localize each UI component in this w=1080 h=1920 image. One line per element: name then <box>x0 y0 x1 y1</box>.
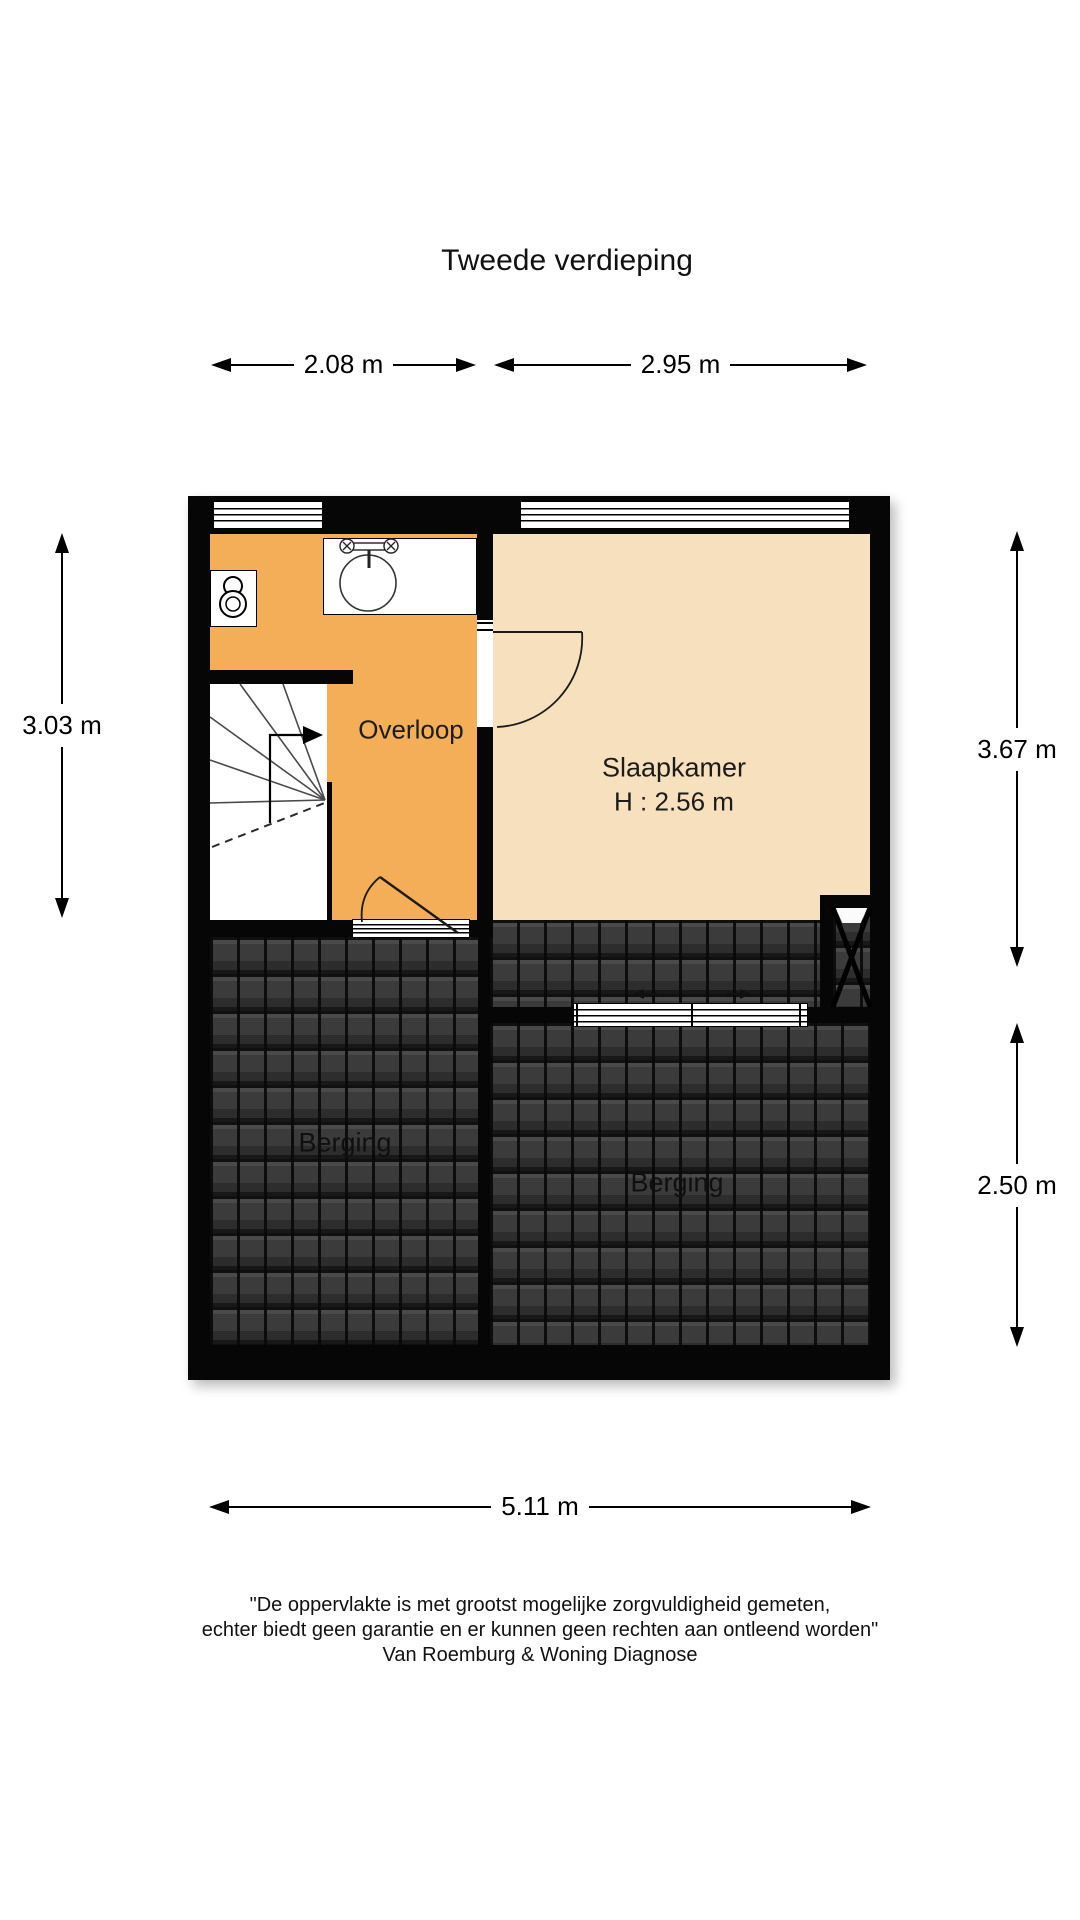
sliding-door-direction-arrows-icon <box>618 986 768 1002</box>
door-swing-bedroom-icon <box>477 616 607 746</box>
dimension-bottom: 5.11 m <box>209 1494 871 1520</box>
disclaimer-line-3: Van Roemburg & Woning Diagnose <box>202 1643 879 1668</box>
dimension-left: 3.03 m <box>12 533 112 918</box>
page-title: Tweede verdieping <box>441 244 693 278</box>
sliding-door <box>573 1003 808 1027</box>
arrowhead-left-icon <box>211 358 231 372</box>
room-label-overloop: Overloop <box>358 715 464 746</box>
dimension-top-right-value: 2.95 m <box>641 349 721 380</box>
wall-right <box>870 496 890 1380</box>
arrowhead-up-icon <box>55 533 69 553</box>
arrowhead-right-icon <box>851 1500 871 1514</box>
dimension-top-left: 2.08 m <box>211 352 476 378</box>
dimension-right-bottom: 2.50 m <box>967 1023 1067 1347</box>
room-label-slaapkamer: Slaapkamer <box>602 753 746 784</box>
sink-icon <box>323 538 477 615</box>
dimension-left-value: 3.03 m <box>22 710 102 741</box>
room-label-berging-right: Berging <box>630 1168 723 1199</box>
wall-overloop-bottom-left <box>208 920 352 937</box>
dimension-right-top-value: 3.67 m <box>977 734 1057 765</box>
arrowhead-down-icon <box>1010 1327 1024 1347</box>
arrowhead-left-icon <box>494 358 514 372</box>
window-bedroom <box>520 501 850 529</box>
chimney-x-icon <box>833 908 870 1007</box>
disclaimer-line-1: "De oppervlakte is met grootst mogelijke… <box>202 1593 879 1618</box>
floorplan-drawing: Overloop Slaapkamer H : 2.56 m Berging B… <box>188 496 890 1380</box>
wall-above-stairs <box>208 670 353 684</box>
disclaimer-line-2: echter biedt geen garantie en er kunnen … <box>202 1618 879 1643</box>
dimension-top-right: 2.95 m <box>494 352 867 378</box>
dimension-top-left-value: 2.08 m <box>304 349 384 380</box>
wall-bottom <box>188 1345 890 1380</box>
disclaimer-text: "De oppervlakte is met grootst mogelijke… <box>202 1593 879 1668</box>
arrowhead-left-icon <box>209 1500 229 1514</box>
arrowhead-up-icon <box>1010 1023 1024 1043</box>
floorplan-page: { "title": "Tweede verdieping", "dimensi… <box>0 0 1080 1920</box>
dimension-right-top: 3.67 m <box>967 531 1067 967</box>
dimension-right-bottom-value: 2.50 m <box>977 1170 1057 1201</box>
wall-berging-divider <box>478 920 490 1345</box>
room-label-slaapkamer-height: H : 2.56 m <box>614 787 734 818</box>
dimension-bottom-value: 5.11 m <box>501 1491 579 1522</box>
wall-left <box>188 496 210 1380</box>
arrowhead-down-icon <box>55 898 69 918</box>
arrowhead-right-icon <box>847 358 867 372</box>
window-top-left <box>213 501 323 529</box>
stairs-icon <box>210 684 327 920</box>
arrowhead-down-icon <box>1010 947 1024 967</box>
boiler-dials-icon <box>210 570 257 627</box>
arrowhead-right-icon <box>456 358 476 372</box>
chimney-wall-left <box>820 895 833 1020</box>
door-swing-overloop-icon <box>348 866 473 946</box>
arrowhead-up-icon <box>1010 531 1024 551</box>
room-label-berging-left: Berging <box>298 1128 391 1159</box>
